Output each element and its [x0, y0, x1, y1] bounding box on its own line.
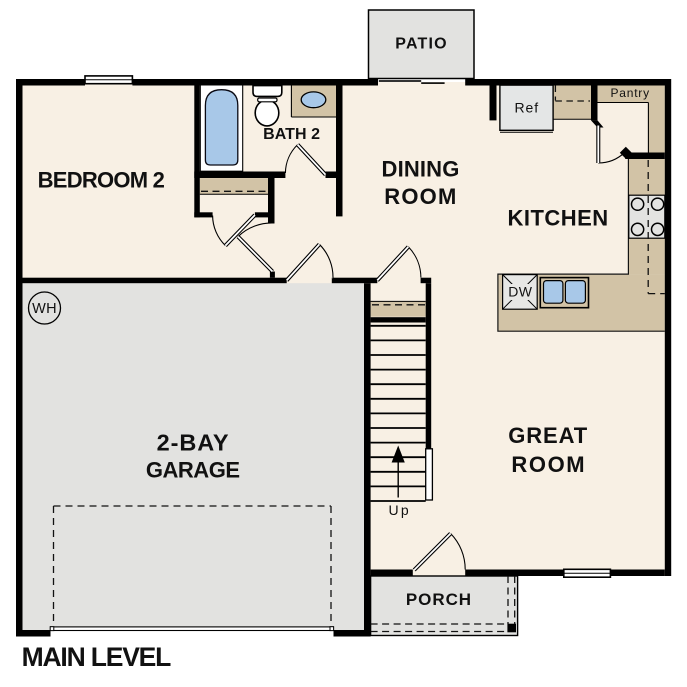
svg-text:DINING: DINING [382, 157, 460, 182]
svg-text:GARAGE: GARAGE [146, 458, 240, 483]
svg-text:Ref: Ref [515, 100, 540, 116]
svg-text:2-BAY: 2-BAY [157, 430, 230, 456]
svg-text:WH: WH [32, 301, 57, 317]
svg-text:BATH 2: BATH 2 [263, 126, 320, 143]
svg-text:ROOM: ROOM [511, 452, 586, 477]
svg-text:BEDROOM 2: BEDROOM 2 [38, 168, 165, 193]
svg-text:GREAT: GREAT [508, 423, 588, 448]
svg-text:ROOM: ROOM [384, 184, 457, 209]
svg-text:Pantry: Pantry [611, 86, 650, 100]
svg-text:PORCH: PORCH [406, 590, 472, 609]
svg-text:Up: Up [389, 502, 411, 518]
svg-text:MAIN LEVEL: MAIN LEVEL [22, 642, 172, 672]
svg-text:KITCHEN: KITCHEN [507, 206, 608, 231]
svg-text:DW: DW [508, 283, 533, 299]
svg-text:PATIO: PATIO [395, 35, 448, 52]
